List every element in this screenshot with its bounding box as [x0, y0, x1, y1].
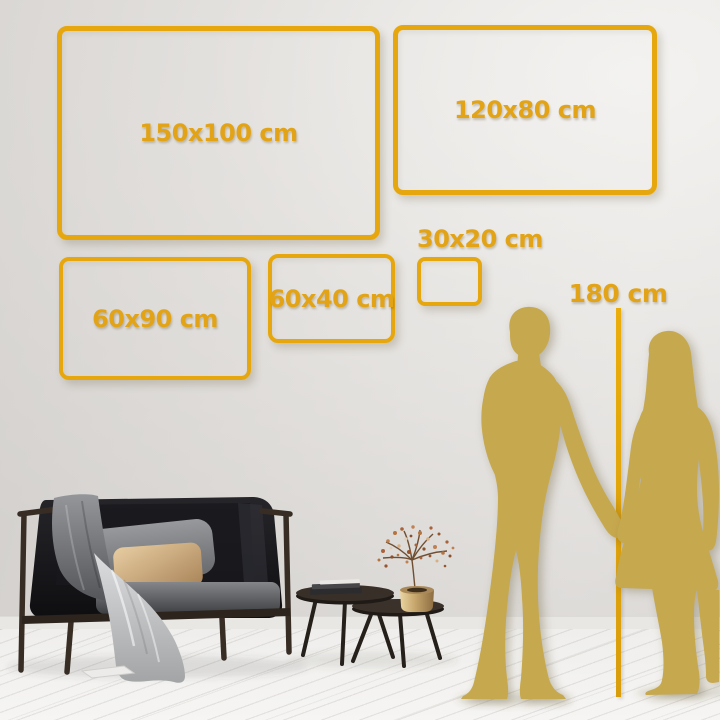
plant-stems [383, 530, 447, 589]
vase-opening [407, 588, 427, 593]
floor-shadows [8, 652, 720, 705]
scene-illustration [0, 0, 720, 720]
man-silhouette [461, 307, 624, 699]
wall-art-size-guide-scene: 150x100 cm 120x80 cm 60x90 cm 60x40 cm 3… [0, 0, 720, 720]
plant-blossoms [378, 525, 455, 567]
books-stack [310, 579, 362, 595]
sofa [20, 494, 290, 682]
woman-silhouette [615, 331, 719, 695]
